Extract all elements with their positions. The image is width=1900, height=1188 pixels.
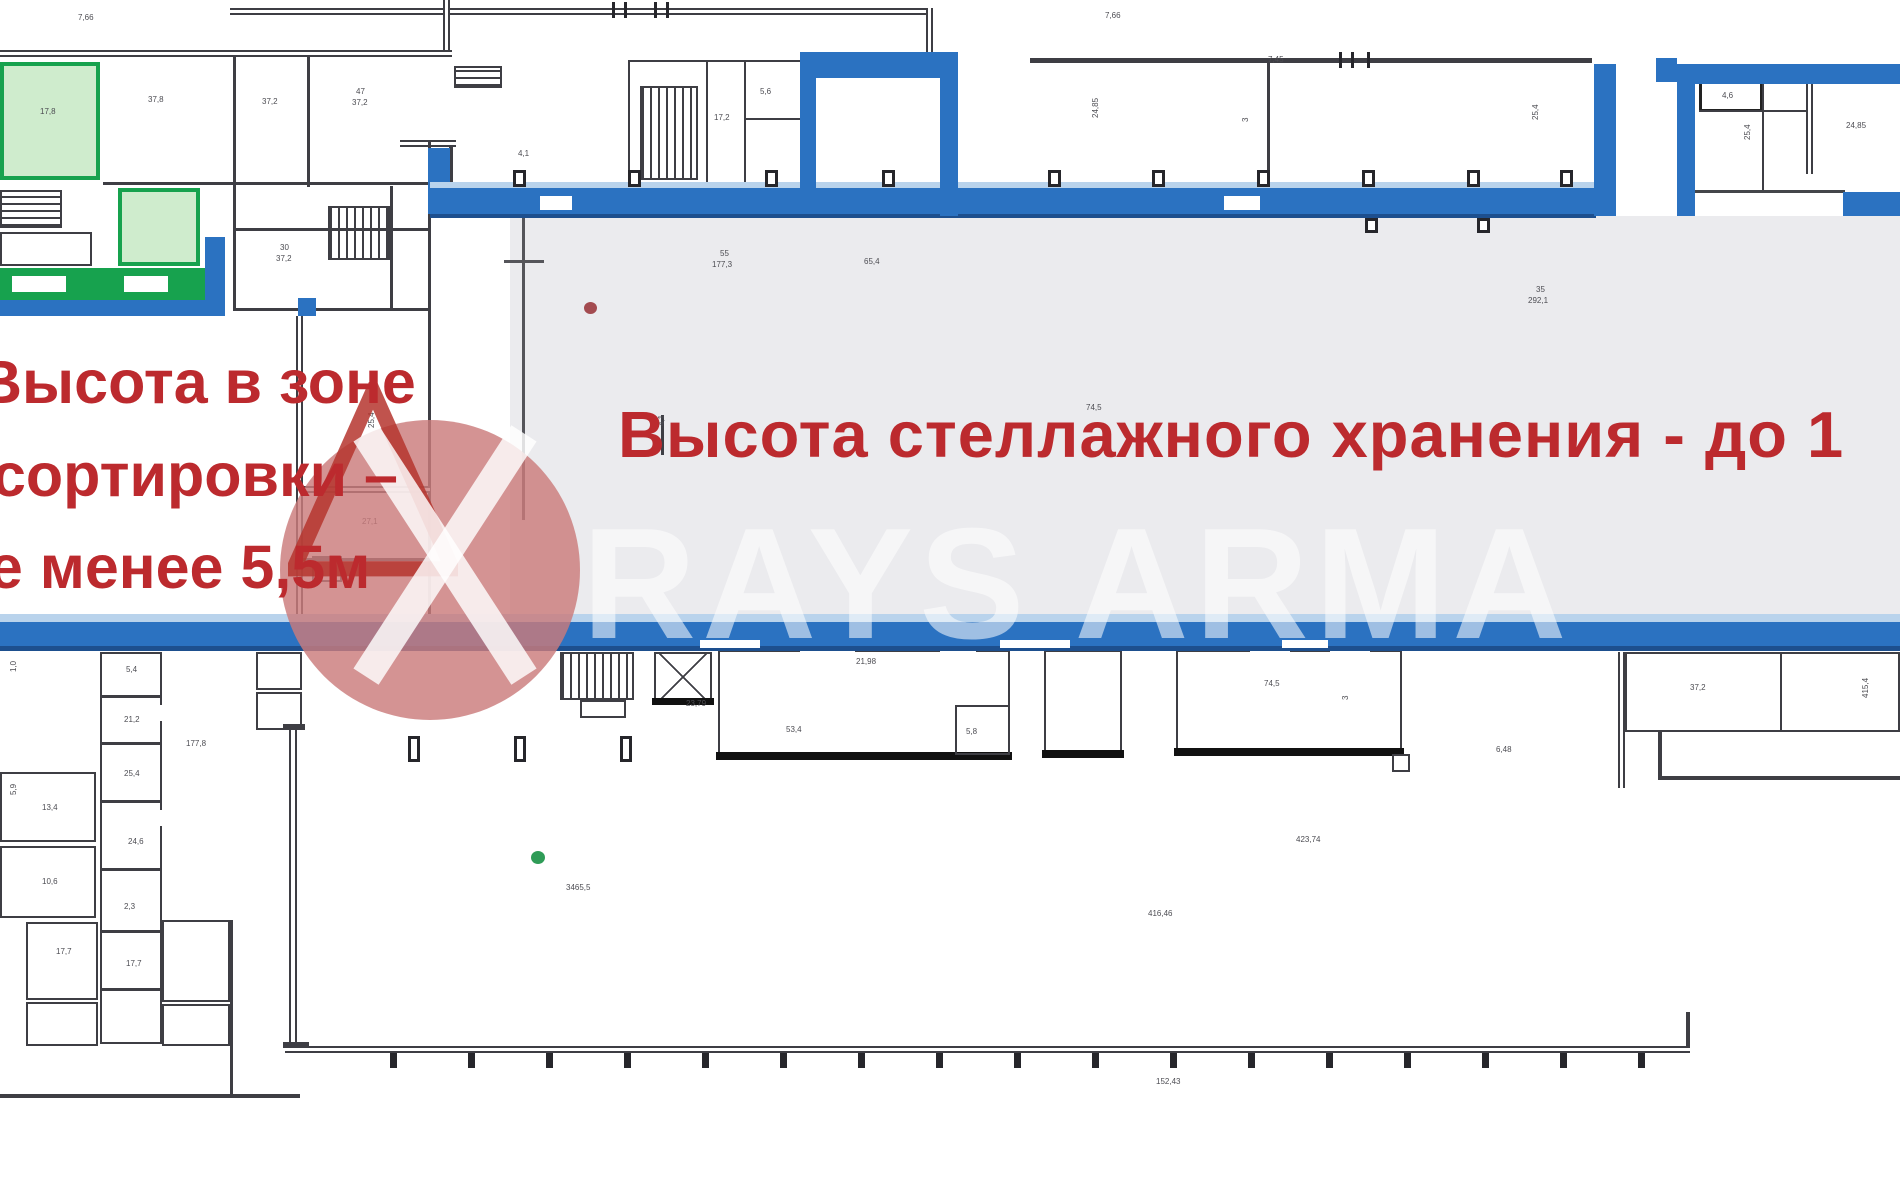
column [408,736,420,762]
wall [103,182,433,185]
blue-wall [298,298,316,316]
facade-column-tick [858,1053,865,1068]
room-label: 30 [280,244,289,252]
column [628,170,641,187]
room [162,920,230,1002]
room-label: 74,5 [1264,680,1280,688]
room [0,232,92,266]
door-gap [158,705,162,721]
wall [230,8,930,15]
room-label: 24,85 [1846,122,1866,130]
column [1257,170,1270,187]
room-label: 7,45 [1268,56,1284,64]
wall [100,695,162,698]
wall [307,57,310,187]
facade-column-tick [390,1053,397,1068]
facade-column-tick [1560,1053,1567,1068]
blue-wall [430,188,1596,214]
column [620,736,632,762]
wall [1174,748,1404,756]
wall [1780,652,1782,732]
room [955,705,1010,755]
room-label: 5,8 [966,728,977,736]
facade-column-tick [468,1053,475,1068]
wall [390,186,393,310]
wall [1618,652,1625,788]
room-label: 4,1 [518,150,529,158]
wall-bracket [283,724,305,730]
wall [1695,190,1845,193]
room-label: 17,7 [56,948,72,956]
facade-wall [285,1046,1690,1053]
annotation-sorting-line2: сортировки – [0,445,398,506]
room-label: 35 [1536,286,1545,294]
green-room [118,188,200,266]
room-label: 65,4 [864,258,880,266]
column [1152,170,1165,187]
room-label: 25,4 [124,770,140,778]
room [26,922,98,1000]
staircase [0,190,62,228]
room-label: 1,0 [10,661,18,672]
wall [100,800,162,803]
door-gap [540,196,572,210]
blue-wall [430,214,1596,218]
column [1365,218,1378,233]
room-label: 13,4 [42,804,58,812]
ramp-hatch [454,66,502,88]
floor-plan: RAYS ARMA Высота в зоне сортировки – не … [0,0,1900,1188]
room [26,1002,98,1046]
room-label: 416,46 [1148,910,1172,918]
wall [0,1094,300,1098]
room-label: 10,6 [42,878,58,886]
wall [0,50,452,57]
room-label: 5,4 [126,666,137,674]
room-label: 37,2 [262,98,278,106]
room-label: 6,48 [1496,746,1512,754]
room-label: 17,2 [714,114,730,122]
green-room [10,274,68,294]
facade-column-tick [702,1053,709,1068]
wall [1806,80,1813,174]
room-label: 5,6 [760,88,771,96]
room-label: 4,6 [1722,92,1733,100]
column [765,170,778,187]
column [882,170,895,187]
blue-wall [1843,192,1900,216]
wall [926,8,933,54]
door-gap [1224,196,1260,210]
wall [100,930,162,933]
facade-column-tick [546,1053,553,1068]
wall [100,868,162,871]
staircase [640,86,698,180]
wall [230,920,233,1094]
blue-wall [1594,64,1616,216]
room-label: 37,2 [1690,684,1706,692]
wall [443,0,450,52]
column [1467,170,1480,187]
blue-wall [205,237,225,303]
blue-wall [940,52,958,216]
wall [1699,110,1809,112]
wall [1660,776,1900,780]
door-gap [158,810,162,826]
blue-wall [1695,64,1900,84]
room [1625,652,1900,732]
room-label: 55 [720,250,729,258]
dimension-tick [504,260,544,263]
room-label: 37,2 [276,255,292,263]
wall [746,118,804,120]
wall-bracket [1392,754,1410,772]
room-label: 53,4 [786,726,802,734]
wall [100,988,162,991]
room-label: 415,4 [1862,678,1870,698]
room-label: 25,4 [1744,124,1752,140]
wall [233,308,430,311]
blue-wall [800,52,816,190]
facade-column-tick [1092,1053,1099,1068]
blue-wall [0,300,225,316]
room-label: 3 [1342,696,1350,700]
wall [289,730,297,1048]
room-label: 152,43 [1156,1078,1180,1086]
green-dot-marker [531,851,545,864]
door-tick [1367,52,1370,68]
red-dot-marker [584,302,597,314]
column [1048,170,1061,187]
column [513,170,526,187]
door-tick [624,2,627,18]
blue-wall [800,52,958,78]
room-label: 21,2 [124,716,140,724]
facade-column-tick [1638,1053,1645,1068]
room-label: 25,4 [1532,104,1540,120]
column [1477,218,1490,233]
column [1362,170,1375,187]
facade-column-tick [624,1053,631,1068]
facade-column-tick [1326,1053,1333,1068]
room-label: 5,9 [10,784,18,795]
room-label: 24,85 [1092,98,1100,118]
annotation-sorting-line3: не менее 5,5м [0,537,370,598]
room-label: 7,66 [78,14,94,22]
wall [706,62,708,188]
room-label: 3465,5 [566,884,590,892]
facade-column-tick [1482,1053,1489,1068]
watermark-brand-text: RAYS ARMA [582,505,1572,663]
facade-column-tick [1014,1053,1021,1068]
room-label: 37,2 [352,99,368,107]
green-room [122,274,170,294]
facade-column-tick [1248,1053,1255,1068]
room-label: 292,1 [1528,297,1548,305]
room-label: 177,8 [186,740,206,748]
wall [1042,750,1124,758]
wall [1686,1012,1690,1048]
column [514,736,526,762]
green-room [0,62,100,180]
wall [100,742,162,745]
annotation-storage-height: Высота стеллажного хранения - до 1 [618,402,1844,467]
facade-column-tick [1404,1053,1411,1068]
room-label: 423,74 [1296,836,1320,844]
room [256,652,302,690]
stair-landing [580,700,626,718]
room-label: 24,6 [128,838,144,846]
door-tick [612,2,615,18]
room-label: 3 [1242,118,1250,122]
facade-column-tick [936,1053,943,1068]
staircase [328,206,390,260]
blue-wall [1677,64,1695,216]
room-label: 47 [356,88,365,96]
room [162,1004,230,1046]
wall [1030,58,1592,63]
room-label: 7,66 [1105,12,1121,20]
wall [1658,732,1662,780]
column [1560,170,1573,187]
door-tick [1339,52,1342,68]
room-strip [100,652,162,1044]
blue-wall [1656,58,1677,82]
room-label: 23,79 [686,700,706,708]
wall [744,62,746,188]
annotation-sorting-line1: Высота в зоне [0,352,416,413]
room-label: 177,3 [712,261,732,269]
door-tick [666,2,669,18]
facade-column-tick [1170,1053,1177,1068]
room-label: 2,3 [124,903,135,911]
facade-column-tick [780,1053,787,1068]
door-tick [1351,52,1354,68]
wall [1762,80,1764,192]
room-label: 17,7 [126,960,142,968]
door-tick [654,2,657,18]
room-label: 17,8 [40,108,56,116]
room-label: 37,8 [148,96,164,104]
